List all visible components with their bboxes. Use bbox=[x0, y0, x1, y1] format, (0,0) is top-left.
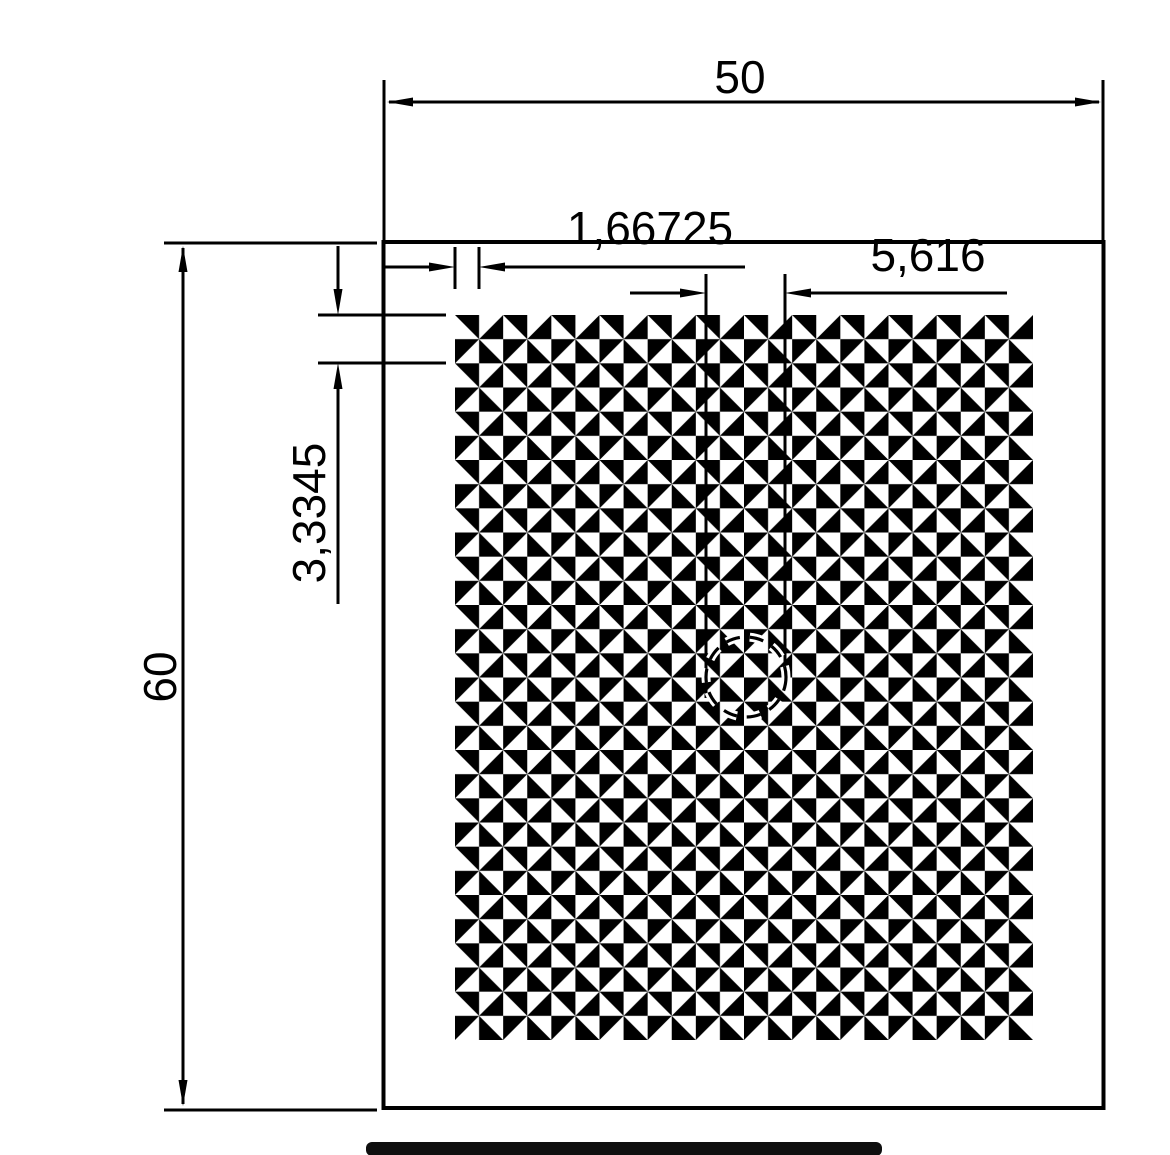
bottom-bar[interactable] bbox=[366, 1142, 882, 1155]
triangle-pattern-area bbox=[455, 315, 1033, 1040]
dim-rowpitch-label: 3,3345 bbox=[283, 443, 335, 584]
dim-diameter-label: 5,616 bbox=[870, 229, 985, 281]
technical-drawing-page: 50 60 1,66725 5,616 3,3345 bbox=[0, 0, 1170, 1155]
dim-width-label: 50 bbox=[714, 51, 765, 103]
dim-pitch-label: 1,66725 bbox=[567, 202, 733, 254]
drawing-canvas: 50 60 1,66725 5,616 3,3345 bbox=[0, 0, 1170, 1155]
dim-height-label: 60 bbox=[134, 651, 186, 702]
